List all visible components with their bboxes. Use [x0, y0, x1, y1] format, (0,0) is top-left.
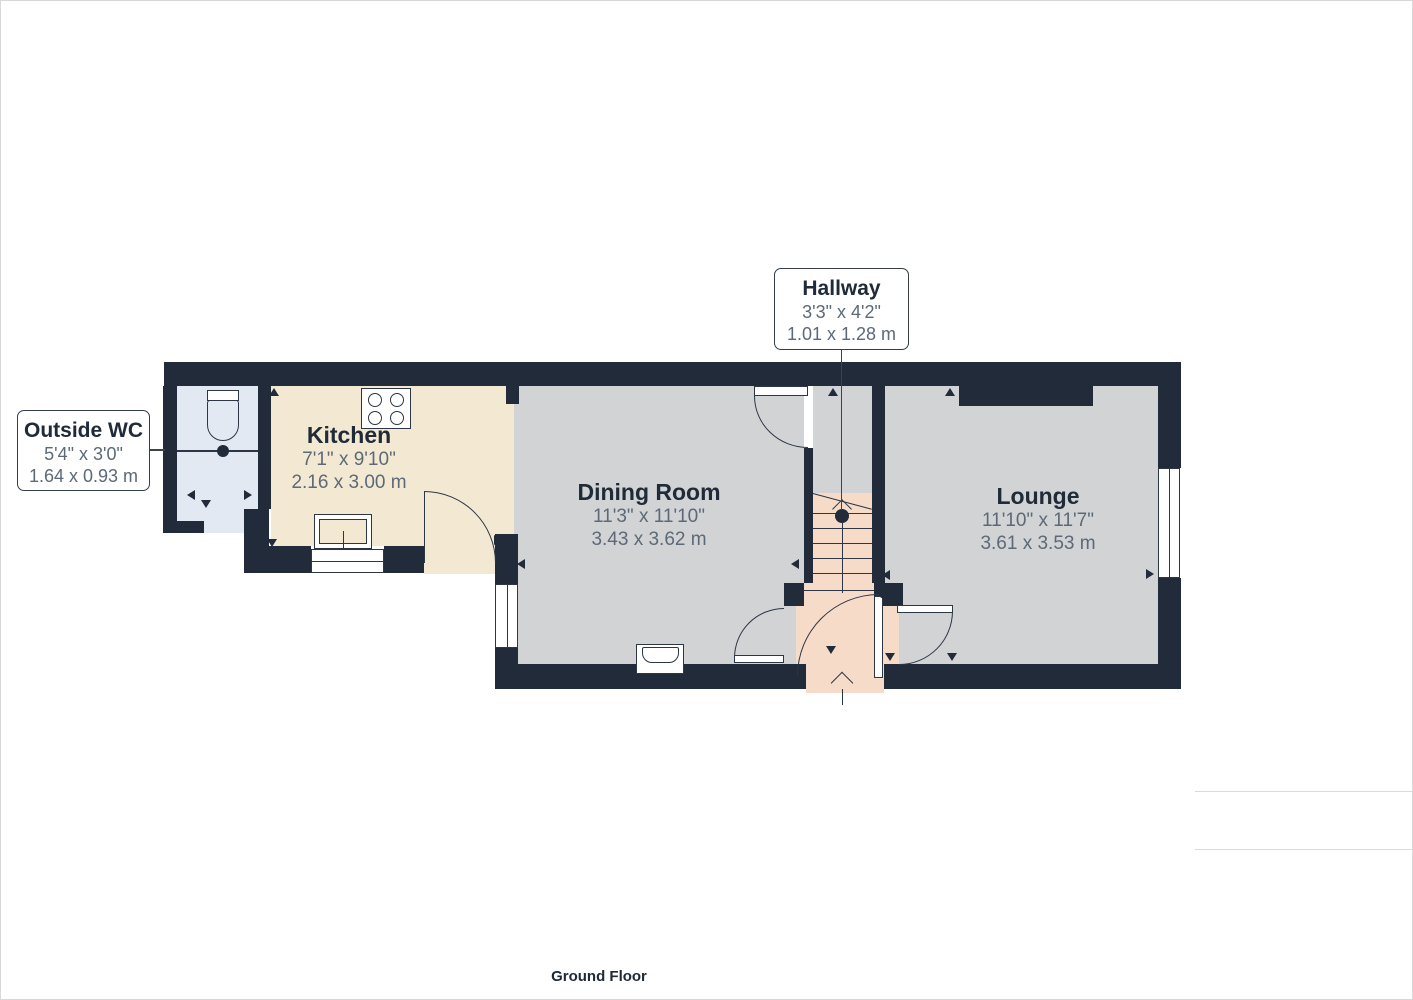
outside-wc-label: Outside WC 5'4" x 3'0" 1.64 x 0.93 m — [17, 410, 150, 491]
lounge-metric: 3.61 x 3.53 m — [938, 532, 1138, 555]
dim-arrow — [791, 559, 799, 569]
dim-arrow — [1146, 569, 1154, 579]
dim-arrow — [828, 388, 838, 396]
outside-wc-floor — [204, 521, 244, 533]
kitchen-name: Kitchen — [249, 422, 449, 448]
dining-name: Dining Room — [549, 479, 749, 505]
hallway-name: Hallway — [775, 276, 908, 301]
dim-arrow — [826, 646, 836, 654]
dining-imperial: 11'3" x 11'10" — [549, 505, 749, 528]
sidebar-hdivider — [1195, 791, 1413, 792]
wall-stub-kitchen-dining — [506, 386, 519, 404]
kitchen-window — [311, 549, 384, 573]
wall-dining-left-lower — [495, 648, 518, 664]
lounge-label: Lounge 11'10" x 11'7" 3.61 x 3.53 m — [938, 483, 1138, 555]
lounge-imperial: 11'10" x 11'7" — [938, 509, 1138, 532]
dim-arrow — [267, 539, 277, 547]
lounge-window — [1158, 468, 1180, 578]
kitchen-sink — [314, 514, 372, 549]
wall-lounge-right-upper — [1158, 386, 1181, 468]
dining-label: Dining Room 11'3" x 11'10" 3.43 x 3.62 m — [549, 479, 749, 551]
wall-wc-bottom — [163, 521, 204, 533]
hallway-imperial: 3'3" x 4'2" — [775, 301, 908, 323]
outside-wc-metric: 1.64 x 0.93 m — [18, 465, 149, 487]
wall-kitchen-bottom-a — [258, 546, 311, 573]
wall-hallway-lounge — [872, 386, 885, 583]
dim-arrow — [947, 653, 957, 661]
toilet-bowl — [207, 400, 239, 441]
dining-metric: 3.43 x 3.62 m — [549, 528, 749, 551]
outside-wc-name: Outside WC — [18, 418, 149, 443]
entrance-arrow-line — [842, 689, 843, 705]
front-door-leaf — [874, 596, 883, 678]
wall-wc-left — [163, 386, 177, 524]
lounge-name: Lounge — [938, 483, 1138, 509]
dim-arrow — [517, 559, 525, 569]
kitchen-door-leaf — [424, 491, 425, 563]
hallway-metric: 1.01 x 1.28 m — [775, 323, 908, 345]
dining-entrance-door-leaf — [734, 655, 784, 663]
wall-dining-hallway — [804, 448, 813, 583]
dim-arrow — [885, 653, 895, 661]
lounge-door-leaf — [897, 605, 953, 613]
dim-arrow — [880, 592, 888, 602]
wall-kitchen-bottom-b — [384, 546, 424, 573]
dim-arrow — [187, 490, 195, 500]
dim-arrow — [945, 388, 955, 396]
floor-title: Ground Floor — [449, 968, 749, 985]
dim-arrow — [269, 388, 279, 396]
wall-lounge-right-lower — [1158, 578, 1181, 664]
info-sidebar: Approximate total area(1) 397 ft2 36.9 m… — [1194, 1, 1413, 1000]
stair-tread — [804, 590, 874, 591]
kitchen-metric: 2.16 x 3.00 m — [249, 471, 449, 494]
hallway-landing-floor — [813, 386, 872, 493]
dining-window — [495, 584, 518, 648]
kitchen-imperial: 7'1" x 9'10" — [249, 448, 449, 471]
floorplan-canvas: Kitchen 7'1" x 9'10" 2.16 x 3.00 m Dinin… — [0, 0, 1413, 1000]
outside-wc-floor — [177, 509, 244, 521]
wall-top — [164, 362, 1181, 386]
dim-arrow — [882, 570, 890, 580]
hallway-leader-line — [841, 350, 842, 510]
dining-top-door-leaf — [754, 386, 808, 396]
hallway-label: Hallway 3'3" x 4'2" 1.01 x 1.28 m — [774, 268, 909, 350]
dining-basin — [636, 644, 684, 674]
camera-point — [835, 509, 849, 523]
wc-leader-line — [149, 449, 165, 451]
wc-door-pivot — [217, 445, 229, 457]
wall-lounge-chimney — [959, 386, 1093, 406]
wall-bottom-right — [884, 664, 1181, 689]
outside-wc-imperial: 5'4" x 3'0" — [18, 443, 149, 465]
dim-arrow — [494, 535, 502, 545]
dim-arrow — [795, 590, 803, 600]
dim-arrow — [201, 500, 211, 508]
kitchen-label: Kitchen 7'1" x 9'10" 2.16 x 3.00 m — [249, 422, 449, 494]
sidebar-hdivider — [1195, 849, 1413, 850]
